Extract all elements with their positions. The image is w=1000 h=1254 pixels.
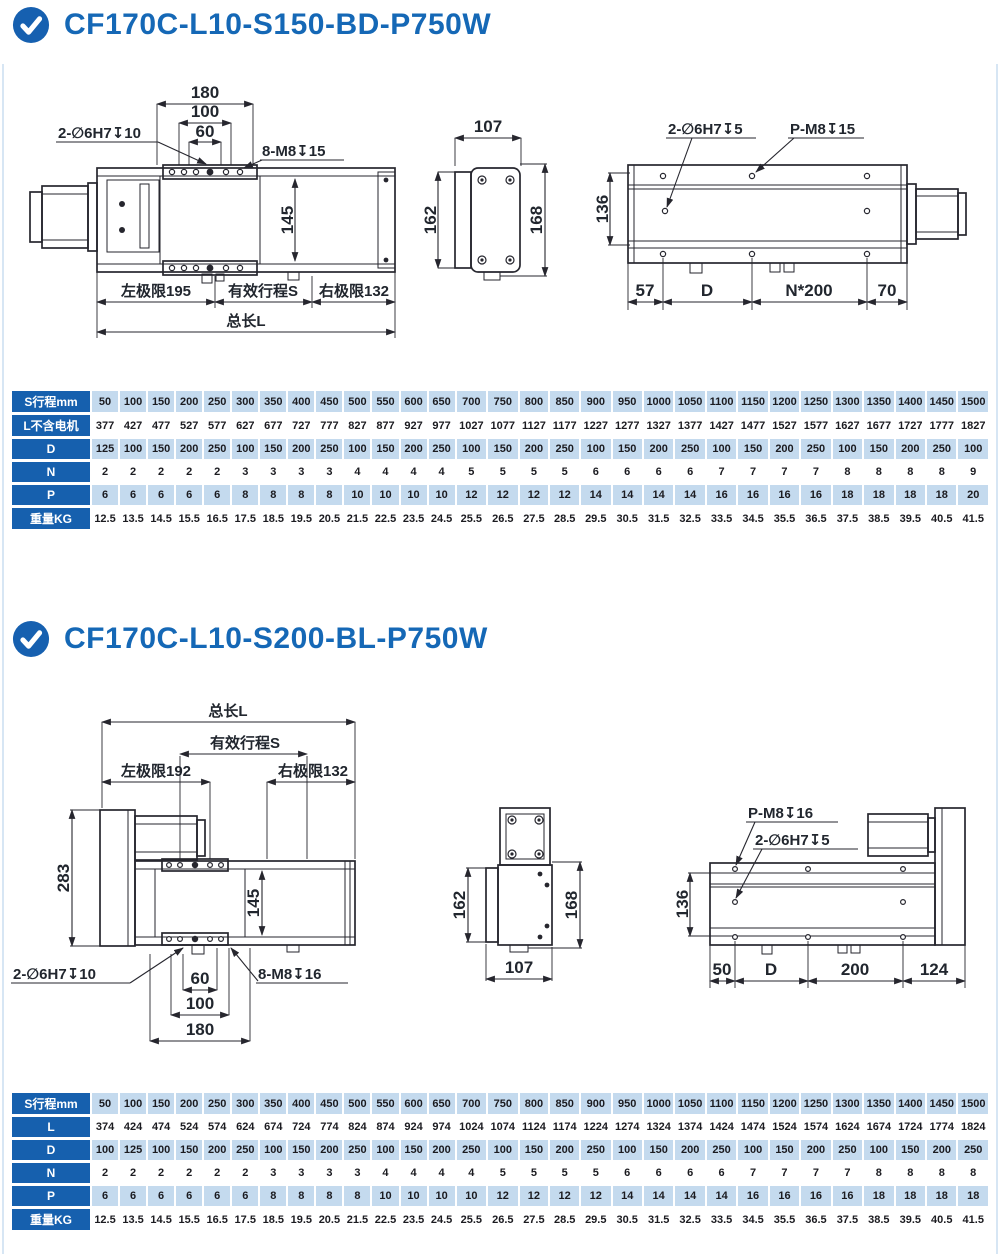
table-cell: 927	[401, 415, 427, 436]
table-cell: 14	[675, 485, 704, 505]
table-cell: 874	[372, 1117, 398, 1137]
table-cell: 250	[707, 1140, 736, 1160]
stroke-label: 有效行程S	[210, 734, 280, 752]
table-cell: 100	[613, 1140, 642, 1160]
table-cell: 10	[429, 1186, 455, 1206]
table-cell: 16	[738, 1186, 767, 1206]
table-cell: 100	[120, 391, 146, 412]
table-cell: 200	[401, 439, 427, 459]
table-cell: 6	[176, 1186, 202, 1206]
dim-168: 168	[562, 891, 581, 919]
table-cell: 2	[204, 462, 230, 482]
chain-D: D	[765, 960, 777, 979]
table-cell: 700	[457, 1093, 486, 1114]
table-cell: 674	[260, 1117, 286, 1137]
table-cell: 7	[801, 462, 830, 482]
table-cell: 400	[288, 1093, 314, 1114]
table-cell: 500	[344, 391, 370, 412]
table-cell: 1524	[770, 1117, 799, 1137]
table-cell: 12.5	[92, 508, 118, 529]
table-row: P666666888810101010121212121414141416161…	[12, 1186, 988, 1206]
table-cell: 16	[770, 1186, 799, 1206]
table-cell: 2	[232, 1163, 258, 1183]
table-cell: 2	[120, 1163, 146, 1183]
table-cell: 6	[92, 1186, 118, 1206]
table-cell: 10	[401, 485, 427, 505]
table-cell: 7	[833, 1163, 862, 1183]
table-cell: 1050	[675, 391, 704, 412]
table-cell: 427	[120, 415, 146, 436]
table-cell: 700	[457, 391, 486, 412]
chain-70: 70	[878, 281, 897, 300]
table-cell: 22.5	[372, 1209, 398, 1230]
table-cell: 16	[801, 485, 830, 505]
table-cell: 1527	[770, 415, 799, 436]
row-header: D	[12, 1140, 90, 1160]
table-cell: 827	[344, 415, 370, 436]
carriage-holes	[169, 169, 242, 272]
table-cell: 1224	[581, 1117, 610, 1137]
table-cell: 14	[675, 1186, 704, 1206]
table-cell: 650	[429, 1093, 455, 1114]
table-cell: 474	[148, 1117, 174, 1137]
table-cell: 21.5	[344, 508, 370, 529]
table-cell: 150	[148, 391, 174, 412]
row-header: 重量KG	[12, 508, 90, 529]
table-cell: 977	[429, 415, 455, 436]
table-cell: 1400	[896, 391, 925, 412]
table-cell: 13.5	[120, 1209, 146, 1230]
dim-136: 136	[593, 195, 612, 223]
table-cell: 250	[344, 1140, 370, 1160]
table-cell: 250	[204, 391, 230, 412]
table-cell: 2	[92, 462, 118, 482]
dim-60: 60	[191, 969, 210, 988]
table-cell: 1100	[707, 391, 736, 412]
table-cell: 23.5	[401, 508, 427, 529]
table-cell: 37.5	[833, 508, 862, 529]
table-cell: 4	[401, 462, 427, 482]
table-cell: 850	[550, 1093, 579, 1114]
table-cell: 6	[581, 462, 610, 482]
table-cell: 350	[260, 1093, 286, 1114]
table-row: D100125100150200250100150200250100150200…	[12, 1140, 988, 1160]
table-cell: 8	[927, 1163, 956, 1183]
table-cell: 10	[372, 485, 398, 505]
table-cell: 150	[613, 439, 642, 459]
table-cell: 5	[550, 462, 579, 482]
table-cell: 150	[864, 439, 893, 459]
table-cell: 1450	[927, 1093, 956, 1114]
table-cell: 8	[896, 1163, 925, 1183]
section1-header: CF170C-L10-S150-BD-P750W	[12, 6, 491, 44]
table-cell: 100	[372, 1140, 398, 1160]
table-cell: 4	[429, 462, 455, 482]
row-header: L不含电机	[12, 415, 90, 436]
table-cell: 12	[550, 485, 579, 505]
table-cell: 22.5	[372, 508, 398, 529]
table-cell: 1627	[833, 415, 862, 436]
table-cell: 2	[148, 1163, 174, 1183]
table-cell: 27.5	[520, 508, 549, 529]
table-cell: 1274	[613, 1117, 642, 1137]
table-cell: 8	[316, 485, 342, 505]
table-cell: 30.5	[613, 1209, 642, 1230]
table-cell: 17.5	[232, 1209, 258, 1230]
table-cell: 6	[613, 462, 642, 482]
table-cell: 41.5	[958, 508, 988, 529]
table-cell: 7	[738, 1163, 767, 1183]
left-limit-label: 左极限195	[120, 282, 191, 300]
table-cell: 3	[316, 462, 342, 482]
chain-N200: N*200	[785, 281, 832, 300]
table-cell: 424	[120, 1117, 146, 1137]
table-cell: 250	[833, 1140, 862, 1160]
table-cell: 150	[520, 1140, 549, 1160]
holes-label: 2-∅6H7↧10	[13, 966, 96, 983]
table-cell: 250	[675, 439, 704, 459]
table-cell: 1174	[550, 1117, 579, 1137]
table-cell: 7	[770, 462, 799, 482]
table-cell: 50	[92, 391, 118, 412]
table-cell: 200	[896, 439, 925, 459]
table-cell: 6	[176, 485, 202, 505]
table-cell: 16	[770, 485, 799, 505]
table-cell: 1377	[675, 415, 704, 436]
table-cell: 1574	[801, 1117, 830, 1137]
table-cell: 26.5	[488, 1209, 517, 1230]
table-cell: 14	[581, 485, 610, 505]
table-cell: 5	[488, 462, 517, 482]
table-cell: 1250	[801, 1093, 830, 1114]
table-cell: 1827	[958, 415, 988, 436]
dim-107: 107	[474, 117, 502, 136]
table-cell: 4	[372, 1163, 398, 1183]
table-cell: 250	[581, 1140, 610, 1160]
table-cell: 6	[92, 485, 118, 505]
row-header: S行程mm	[12, 391, 90, 412]
table-cell: 1474	[738, 1117, 767, 1137]
table-cell: 16	[833, 1186, 862, 1206]
table-cell: 250	[204, 439, 230, 459]
table-cell: 200	[770, 439, 799, 459]
table-cell: 150	[401, 1140, 427, 1160]
table-cell: 627	[232, 415, 258, 436]
table-cell: 10	[372, 1186, 398, 1206]
table-cell: 33.5	[707, 1209, 736, 1230]
dim-100: 100	[186, 994, 214, 1013]
table-cell: 100	[581, 439, 610, 459]
table-cell: 850	[550, 391, 579, 412]
table-cell: 200	[801, 1140, 830, 1160]
table-cell: 125	[92, 439, 118, 459]
table-cell: 1000	[644, 1093, 673, 1114]
table-cell: 6	[707, 1163, 736, 1183]
table-cell: 6	[204, 1186, 230, 1206]
table-cell: 524	[176, 1117, 202, 1137]
table-cell: 1500	[958, 1093, 988, 1114]
table-cell: 35.5	[770, 1209, 799, 1230]
table-cell: 20	[958, 485, 988, 505]
table-cell: 577	[204, 415, 230, 436]
table-cell: 100	[833, 439, 862, 459]
table-cell: 100	[864, 1140, 893, 1160]
spec-table: S行程mm50100150200250300350400450500550600…	[10, 1090, 990, 1233]
table-row: D125100150200250100150200250100150200250…	[12, 439, 988, 459]
section1-title: CF170C-L10-S150-BD-P750W	[64, 8, 491, 42]
table-cell: 8	[260, 1186, 286, 1206]
table-cell: 3	[316, 1163, 342, 1183]
table-cell: 924	[401, 1117, 427, 1137]
table-cell: 12	[520, 1186, 549, 1206]
table-cell: 18.5	[260, 1209, 286, 1230]
screws-label: 8-M8↧16	[258, 966, 321, 983]
table-cell: 5	[457, 462, 486, 482]
table-cell: 250	[958, 1140, 988, 1160]
table-cell: 2	[120, 462, 146, 482]
section2-spec-table: S行程mm50100150200250300350400450500550600…	[10, 1090, 990, 1233]
table-cell: 31.5	[644, 1209, 673, 1230]
table-cell: 40.5	[927, 508, 956, 529]
table-cell: 4	[457, 1163, 486, 1183]
table-cell: 200	[550, 1140, 579, 1160]
table-cell: 300	[232, 1093, 258, 1114]
table-row: N222223333444455556666777788889	[12, 462, 988, 482]
table-cell: 18	[896, 485, 925, 505]
row-header: N	[12, 462, 90, 482]
table-cell: 6	[148, 1186, 174, 1206]
table-cell: 150	[896, 1140, 925, 1160]
table-cell: 1400	[896, 1093, 925, 1114]
table-cell: 8	[316, 1186, 342, 1206]
table-cell: 12	[488, 1186, 517, 1206]
holes-label: 2-∅6H7↧10	[58, 125, 141, 142]
table-cell: 1327	[644, 415, 673, 436]
table-cell: 36.5	[801, 508, 830, 529]
right-limit-label: 右极限132	[278, 762, 348, 780]
carriage-holes	[167, 862, 224, 942]
table-cell: 150	[372, 439, 398, 459]
table-cell: 5	[550, 1163, 579, 1183]
table-cell: 100	[707, 439, 736, 459]
table-cell: 10	[344, 485, 370, 505]
table-cell: 6	[120, 485, 146, 505]
table-cell: 150	[176, 1140, 202, 1160]
table-cell: 6	[675, 1163, 704, 1183]
table-cell: 18	[958, 1186, 988, 1206]
table-cell: 100	[120, 439, 146, 459]
table-cell: 5	[520, 1163, 549, 1183]
table-cell: 3	[288, 1163, 314, 1183]
table-cell: 23.5	[401, 1209, 427, 1230]
table-cell: 32.5	[675, 1209, 704, 1230]
table-cell: 724	[288, 1117, 314, 1137]
table-cell: 6	[675, 462, 704, 482]
chain-D: D	[701, 281, 713, 300]
table-cell: 150	[738, 439, 767, 459]
table-cell: 29.5	[581, 1209, 610, 1230]
table-cell: 13.5	[120, 508, 146, 529]
left-limit-label: 左极限192	[120, 762, 191, 780]
row-header: P	[12, 1186, 90, 1206]
chain-57: 57	[636, 281, 655, 300]
table-cell: 1324	[644, 1117, 673, 1137]
table-cell: 550	[372, 391, 398, 412]
table-cell: 8	[864, 1163, 893, 1183]
table-cell: 8	[232, 485, 258, 505]
table-cell: 5	[488, 1163, 517, 1183]
table-cell: 624	[232, 1117, 258, 1137]
bottom-view: P-M8↧16 2-∅6H7↧5 136 50 D 200 124	[673, 805, 965, 988]
table-cell: 824	[344, 1117, 370, 1137]
table-cell: 1200	[770, 391, 799, 412]
table-cell: 200	[316, 1140, 342, 1160]
table-cell: 2	[92, 1163, 118, 1183]
dim-162: 162	[450, 891, 469, 919]
total-length-label: 总长L	[226, 312, 265, 330]
table-cell: 3	[260, 1163, 286, 1183]
table-cell: 1424	[707, 1117, 736, 1137]
table-cell: 38.5	[864, 1209, 893, 1230]
row-header: N	[12, 1163, 90, 1183]
dim-180: 180	[191, 83, 219, 102]
table-cell: 3	[232, 462, 258, 482]
table-cell: 15.5	[176, 1209, 202, 1230]
table-cell: 17.5	[232, 508, 258, 529]
table-cell: 800	[520, 1093, 549, 1114]
table-cell: 26.5	[488, 508, 517, 529]
table-cell: 650	[429, 391, 455, 412]
table-cell: 7	[707, 462, 736, 482]
row-header: D	[12, 439, 90, 459]
table-cell: 1777	[927, 415, 956, 436]
table-cell: 750	[488, 1093, 517, 1114]
table-cell: 150	[644, 1140, 673, 1160]
table-cell: 14.5	[148, 508, 174, 529]
table-cell: 6	[644, 1163, 673, 1183]
holes-label: 2-∅6H7↧5	[668, 121, 743, 138]
table-cell: 16.5	[204, 1209, 230, 1230]
table-cell: 25.5	[457, 508, 486, 529]
bottom-view: 136 2-∅6H7↧5 P-M8↧15 57 D N*200 70	[593, 121, 966, 310]
screws-label: P-M8↧15	[790, 121, 855, 138]
table-cell: 35.5	[770, 508, 799, 529]
table-cell: 125	[120, 1140, 146, 1160]
table-cell: 1450	[927, 391, 956, 412]
table-cell: 1577	[801, 415, 830, 436]
dim-180: 180	[186, 1020, 214, 1039]
table-cell: 14	[613, 485, 642, 505]
table-cell: 27.5	[520, 1209, 549, 1230]
table-cell: 200	[204, 1140, 230, 1160]
table-cell: 200	[176, 439, 202, 459]
table-cell: 14.5	[148, 1209, 174, 1230]
dim-283: 283	[54, 864, 73, 892]
table-cell: 8	[896, 462, 925, 482]
table-cell: 18	[864, 1186, 893, 1206]
table-cell: 250	[550, 439, 579, 459]
table-cell: 33.5	[707, 508, 736, 529]
dim-107: 107	[505, 958, 533, 977]
table-cell: 100	[738, 1140, 767, 1160]
table-cell: 377	[92, 415, 118, 436]
table-cell: 1127	[520, 415, 549, 436]
table-cell: 100	[92, 1140, 118, 1160]
table-cell: 9	[958, 462, 988, 482]
table-cell: 1774	[927, 1117, 956, 1137]
table-cell: 250	[204, 1093, 230, 1114]
table-cell: 24.5	[429, 1209, 455, 1230]
table-cell: 1300	[833, 1093, 862, 1114]
table-cell: 250	[232, 1140, 258, 1160]
section2-title: CF170C-L10-S200-BL-P750W	[64, 622, 488, 656]
table-cell: 2	[204, 1163, 230, 1183]
table-cell: 14	[707, 1186, 736, 1206]
section2-header: CF170C-L10-S200-BL-P750W	[12, 620, 488, 658]
table-cell: 10	[401, 1186, 427, 1206]
table-cell: 40.5	[927, 1209, 956, 1230]
table-cell: 1074	[488, 1117, 517, 1137]
table-cell: 8	[288, 1186, 314, 1206]
table-cell: 150	[260, 439, 286, 459]
table-cell: 10	[457, 1186, 486, 1206]
table-cell: 477	[148, 415, 174, 436]
table-cell: 150	[770, 1140, 799, 1160]
table-cell: 7	[770, 1163, 799, 1183]
table-cell: 1024	[457, 1117, 486, 1137]
holes-label: 2-∅6H7↧5	[755, 832, 830, 849]
table-cell: 527	[176, 415, 202, 436]
table-cell: 5	[581, 1163, 610, 1183]
table-cell: 20.5	[316, 508, 342, 529]
table-cell: 50	[92, 1093, 118, 1114]
table-row: S行程mm50100150200250300350400450500550600…	[12, 1093, 988, 1114]
table-cell: 400	[288, 391, 314, 412]
table-cell: 14	[613, 1186, 642, 1206]
table-cell: 31.5	[644, 508, 673, 529]
table-cell: 1250	[801, 391, 830, 412]
table-cell: 900	[581, 391, 610, 412]
table-cell: 1677	[864, 415, 893, 436]
table-cell: 550	[372, 1093, 398, 1114]
table-cell: 300	[232, 391, 258, 412]
table-cell: 200	[927, 1140, 956, 1160]
table-cell: 100	[488, 1140, 517, 1160]
plan-view: 145 180 100 60 2-∅6H7↧10 8-M8↧15 左极限195 …	[30, 83, 395, 338]
table-cell: 12.5	[92, 1209, 118, 1230]
table-cell: 20.5	[316, 1209, 342, 1230]
table-cell: 37.5	[833, 1209, 862, 1230]
table-cell: 250	[801, 439, 830, 459]
table-cell: 250	[927, 439, 956, 459]
table-cell: 8	[288, 485, 314, 505]
table-cell: 250	[316, 439, 342, 459]
table-cell: 1200	[770, 1093, 799, 1114]
table-cell: 1500	[958, 391, 988, 412]
row-header: S行程mm	[12, 1093, 90, 1114]
table-cell: 28.5	[550, 508, 579, 529]
table-cell: 12	[488, 485, 517, 505]
table-cell: 574	[204, 1117, 230, 1137]
table-cell: 34.5	[738, 508, 767, 529]
dim-60: 60	[196, 122, 215, 141]
table-cell: 6	[120, 1186, 146, 1206]
check-icon	[12, 6, 50, 44]
screws-label: P-M8↧16	[748, 805, 813, 822]
table-cell: 100	[148, 1140, 174, 1160]
table-cell: 7	[738, 462, 767, 482]
table-cell: 950	[613, 1093, 642, 1114]
